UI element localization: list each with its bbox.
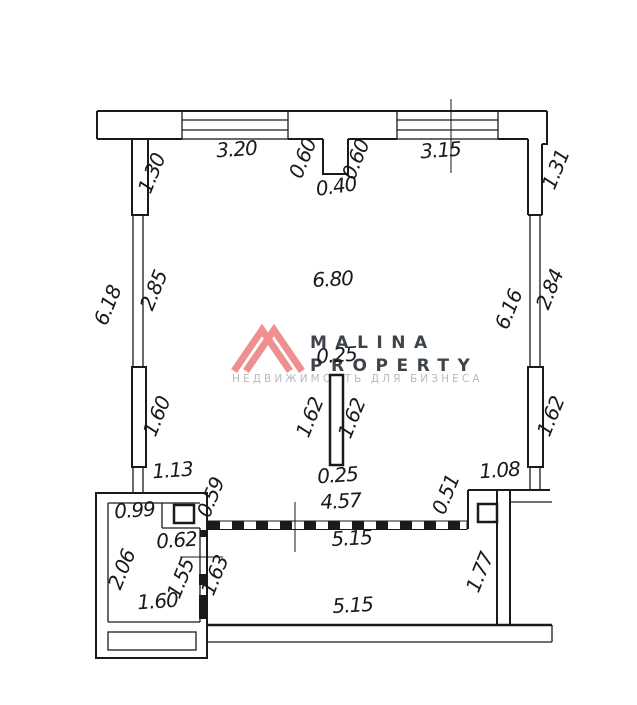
dim-win-top-left: 3.20: [215, 136, 257, 163]
bottom-wall: [207, 625, 552, 642]
dim-small-room-bottom: 1.60: [136, 588, 178, 615]
dim-partition-right-offset: 0.51: [427, 471, 464, 518]
dim-left-inner: 2.85: [135, 267, 173, 314]
dim-win-top-right: 3.15: [419, 137, 461, 164]
door-jamb: [200, 530, 207, 537]
dim-niche-width: 0.40: [314, 171, 358, 200]
floor-plan-svg: MALINA PROPERTY НЕДВИЖИМОСТЬ ДЛЯ БИЗНЕСА: [0, 0, 637, 705]
door-jamb: [199, 595, 207, 619]
dim-right-outer: 2.84: [531, 266, 569, 313]
dim-partition-left-offset: 0.59: [192, 474, 230, 521]
dim-column-top: 0.25: [315, 342, 357, 369]
malina-logo-icon: [234, 330, 302, 371]
shaft-box-left: [174, 505, 194, 523]
dim-wall-left-mid: 1.60: [138, 393, 176, 440]
right-wall: [528, 139, 543, 490]
dim-corridor-height: 1.63: [196, 552, 234, 599]
dim-left-lower: 1.13: [151, 457, 193, 484]
dim-room-width: 6.80: [312, 266, 354, 292]
dim-partition-top: 4.57: [320, 488, 363, 514]
watermark: MALINA PROPERTY НЕДВИЖИМОСТЬ ДЛЯ БИЗНЕСА: [232, 330, 483, 385]
dim-column-left: 1.62: [291, 394, 329, 441]
dim-wall-right-mid: 1.62: [532, 393, 570, 440]
shaft-box-right: [478, 504, 497, 522]
small-room-window: [108, 632, 196, 650]
dim-partition-bottom: 5.15: [331, 525, 373, 551]
top-window-left: [182, 111, 288, 139]
dim-small-room-top: 0.99: [113, 497, 155, 524]
floor-plan-page: MALINA PROPERTY НЕДВИЖИМОСТЬ ДЛЯ БИЗНЕСА: [0, 0, 637, 705]
dim-right-inner: 6.16: [490, 286, 528, 333]
top-window-right: [397, 111, 498, 139]
dim-right-lower: 1.08: [478, 457, 520, 484]
dim-niche-left: 0.60: [284, 135, 322, 182]
dim-left-outer: 6.18: [89, 282, 127, 329]
dim-lower-wall: 1.77: [461, 548, 499, 596]
dim-shaft-offset: 0.62: [155, 527, 197, 554]
dim-column-bottom: 0.25: [316, 462, 358, 489]
watermark-tagline: НЕДВИЖИМОСТЬ ДЛЯ БИЗНЕСА: [232, 373, 483, 385]
dim-bottom-room-width: 5.15: [332, 592, 374, 618]
dim-wall-left-top: 1.30: [133, 150, 171, 197]
